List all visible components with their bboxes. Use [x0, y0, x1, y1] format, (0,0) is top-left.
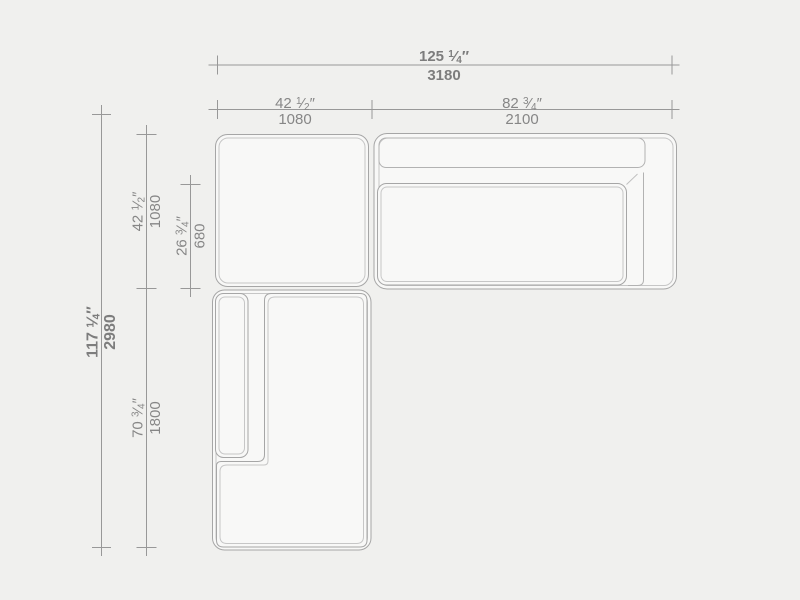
svg-text:2100: 2100 — [505, 111, 538, 128]
svg-text:1800: 1800 — [147, 401, 164, 434]
svg-text:3180: 3180 — [427, 67, 460, 84]
svg-text:1080: 1080 — [147, 195, 164, 228]
svg-text:1080: 1080 — [278, 111, 311, 128]
svg-text:26 3⁄4″: 26 3⁄4″ — [174, 215, 192, 256]
svg-text:680: 680 — [192, 223, 209, 248]
svg-text:70 3⁄4″: 70 3⁄4″ — [130, 397, 148, 438]
svg-text:2980: 2980 — [102, 314, 119, 350]
svg-text:42 1⁄2″: 42 1⁄2″ — [130, 191, 148, 232]
svg-text:125 1⁄4″: 125 1⁄4″ — [419, 48, 469, 66]
svg-text:117 1⁄4″: 117 1⁄4″ — [85, 306, 103, 358]
